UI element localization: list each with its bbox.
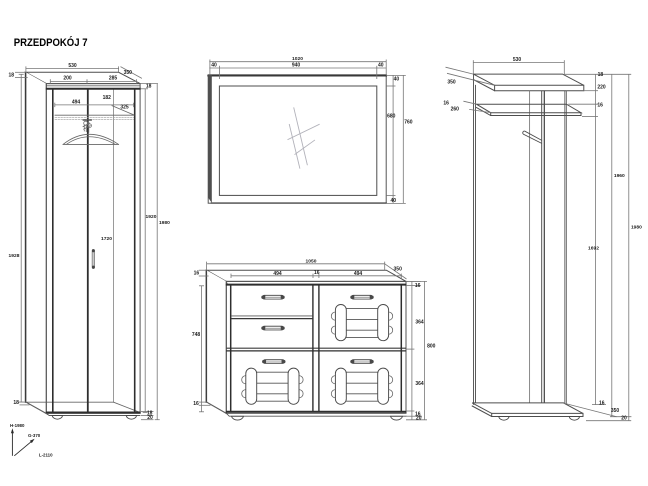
svg-text:20: 20 [147,415,153,421]
svg-text:364: 364 [415,381,424,387]
svg-text:1980: 1980 [159,220,170,226]
svg-text:18: 18 [9,73,15,79]
svg-text:H-1980: H-1980 [10,423,25,428]
svg-text:18: 18 [13,400,19,406]
svg-text:494: 494 [273,271,282,277]
svg-text:760: 760 [404,119,413,125]
svg-text:940: 940 [292,63,301,69]
svg-text:16: 16 [194,270,200,276]
svg-text:748: 748 [192,332,201,338]
svg-text:20: 20 [621,415,627,421]
svg-text:680: 680 [387,113,396,119]
svg-text:1692: 1692 [588,245,599,251]
svg-text:16: 16 [597,103,603,109]
svg-text:350: 350 [611,408,620,414]
svg-text:16: 16 [443,100,449,106]
svg-text:16: 16 [415,283,421,289]
svg-text:16: 16 [193,401,199,407]
svg-text:1928: 1928 [9,253,20,259]
svg-text:200: 200 [63,76,72,82]
svg-text:1920: 1920 [146,214,157,220]
svg-text:G-370: G-370 [28,433,41,438]
svg-text:1980: 1980 [631,224,642,230]
svg-text:494: 494 [354,271,363,277]
svg-text:350: 350 [124,70,133,76]
svg-text:1960: 1960 [614,173,625,179]
svg-text:182: 182 [103,95,112,101]
svg-text:L-2110: L-2110 [39,453,53,458]
svg-text:530: 530 [513,57,522,63]
svg-text:800: 800 [427,344,436,350]
svg-text:530: 530 [68,63,77,69]
svg-text:364: 364 [415,319,424,325]
svg-text:20: 20 [416,416,422,422]
svg-text:350: 350 [394,267,403,273]
svg-text:1020: 1020 [292,56,303,62]
svg-text:220: 220 [597,84,606,90]
svg-text:18: 18 [146,84,152,90]
svg-text:40: 40 [211,63,217,69]
svg-text:260: 260 [451,107,460,113]
svg-text:16: 16 [314,270,320,276]
svg-text:16: 16 [599,401,605,407]
svg-text:285: 285 [109,76,118,82]
svg-text:1720: 1720 [101,236,112,242]
svg-text:350: 350 [447,79,456,85]
svg-text:1050: 1050 [306,259,317,265]
svg-text:40: 40 [378,63,384,69]
svg-text:PRZEDPOKÓJ 7: PRZEDPOKÓJ 7 [14,35,88,49]
svg-text:40: 40 [391,198,397,204]
svg-text:325: 325 [120,105,129,111]
svg-text:494: 494 [72,100,81,106]
svg-text:18: 18 [598,72,604,78]
svg-text:40: 40 [394,76,400,82]
